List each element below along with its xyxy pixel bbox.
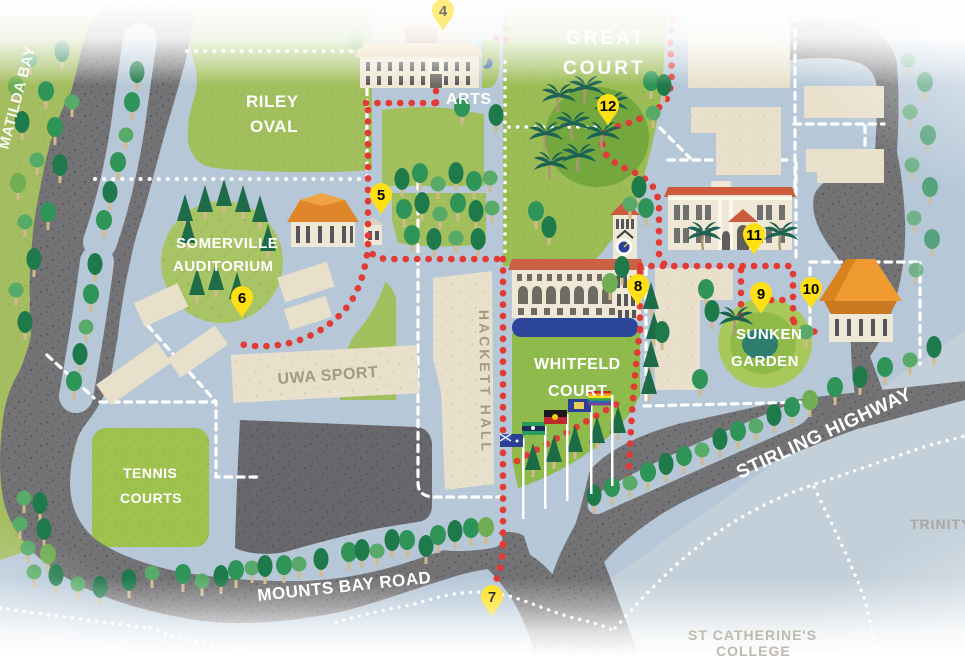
svg-text:TENNIS: TENNIS (123, 465, 177, 481)
svg-text:4: 4 (439, 3, 448, 20)
svg-text:COLLEGE: COLLEGE (716, 643, 791, 656)
svg-text:10: 10 (803, 281, 820, 298)
svg-text:GARDEN: GARDEN (731, 353, 799, 370)
svg-text:AUDITORIUM: AUDITORIUM (173, 258, 274, 275)
svg-text:ST CATHERINE'S: ST CATHERINE'S (688, 627, 817, 643)
svg-text:HACKETT HALL: HACKETT HALL (476, 310, 495, 454)
svg-text:TRINITY: TRINITY (910, 516, 965, 532)
svg-text:5: 5 (377, 187, 385, 204)
svg-text:12: 12 (600, 98, 617, 115)
svg-text:SUNKEN: SUNKEN (736, 326, 802, 343)
svg-text:8: 8 (634, 278, 642, 295)
svg-text:9: 9 (757, 286, 765, 303)
svg-text:11: 11 (746, 227, 762, 244)
svg-text:SOMERVILLE: SOMERVILLE (176, 235, 278, 252)
svg-text:6: 6 (238, 290, 246, 307)
svg-text:OVAL: OVAL (250, 117, 298, 136)
svg-text:ARTS: ARTS (446, 91, 492, 108)
svg-text:WHITFELD: WHITFELD (534, 356, 621, 373)
svg-text:RILEY: RILEY (246, 92, 299, 111)
svg-text:COURT: COURT (548, 383, 607, 400)
